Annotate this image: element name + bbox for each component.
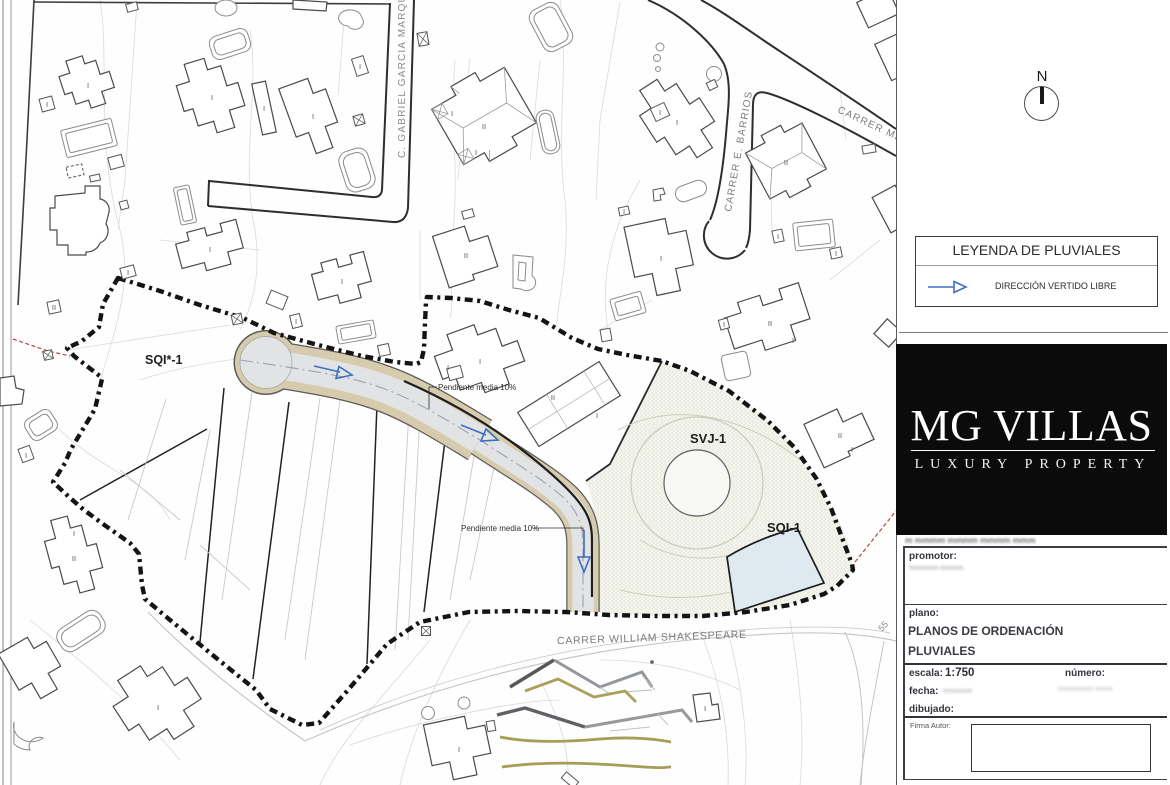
- svg-text:II: II: [72, 554, 76, 563]
- svg-text:II: II: [464, 251, 468, 260]
- svg-text:I: I: [792, 336, 794, 345]
- svg-text:I: I: [263, 104, 265, 113]
- svg-text:I: I: [475, 148, 477, 157]
- svg-text:I: I: [676, 118, 678, 127]
- svg-text:I: I: [341, 277, 343, 286]
- svg-text:I: I: [211, 93, 213, 102]
- svg-text:I: I: [659, 108, 661, 117]
- svg-text:C. GABRIEL GARCIA MARQUEZ: C. GABRIEL GARCIA MARQUEZ: [397, 0, 408, 158]
- svg-text:Pendiente media 10%: Pendiente media 10%: [438, 383, 516, 392]
- svg-text:I: I: [295, 317, 297, 326]
- svg-text:I: I: [596, 411, 598, 420]
- svg-text:I: I: [25, 451, 27, 460]
- svg-text:I: I: [73, 529, 75, 538]
- svg-text:SVJ-1: SVJ-1: [690, 431, 726, 446]
- svg-text:I: I: [209, 245, 211, 254]
- svg-text:I: I: [87, 81, 89, 90]
- svg-text:I: I: [312, 112, 314, 121]
- svg-text:I: I: [359, 62, 361, 71]
- svg-text:I: I: [127, 268, 129, 277]
- svg-text:I: I: [704, 704, 706, 713]
- svg-text:I: I: [451, 109, 453, 118]
- svg-text:II: II: [482, 122, 486, 131]
- svg-text:SQI-1: SQI-1: [767, 520, 801, 535]
- svg-text:I: I: [723, 320, 725, 329]
- svg-text:I: I: [46, 100, 48, 109]
- svg-text:SQI*-1: SQI*-1: [145, 353, 183, 367]
- svg-text:I: I: [623, 207, 625, 216]
- svg-text:II: II: [768, 319, 772, 328]
- svg-text:II: II: [52, 303, 56, 312]
- svg-text:II: II: [784, 158, 788, 167]
- svg-text:I: I: [851, 445, 853, 454]
- svg-text:I: I: [157, 703, 159, 712]
- svg-text:I: I: [479, 357, 481, 366]
- svg-text:II: II: [551, 393, 555, 402]
- svg-text:I: I: [777, 232, 779, 241]
- svg-text:I: I: [447, 363, 449, 372]
- svg-text:I: I: [835, 249, 837, 258]
- svg-text:I: I: [458, 745, 460, 754]
- svg-text:Pendiente media 10%: Pendiente media 10%: [461, 524, 539, 533]
- svg-text:II: II: [838, 431, 842, 440]
- svg-text:I: I: [660, 254, 662, 263]
